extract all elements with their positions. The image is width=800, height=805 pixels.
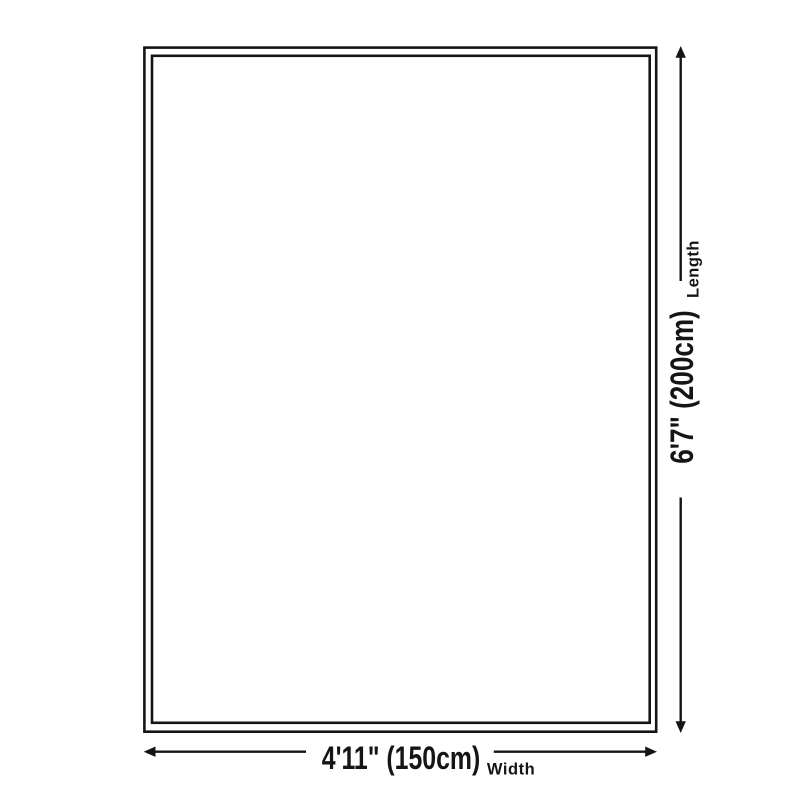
svg-text:6'7" (200cm): 6'7" (200cm) [664, 310, 700, 463]
svg-text:Width: Width [487, 760, 535, 778]
svg-text:Length: Length [685, 240, 703, 298]
svg-text:4'11" (150cm): 4'11" (150cm) [322, 741, 480, 777]
